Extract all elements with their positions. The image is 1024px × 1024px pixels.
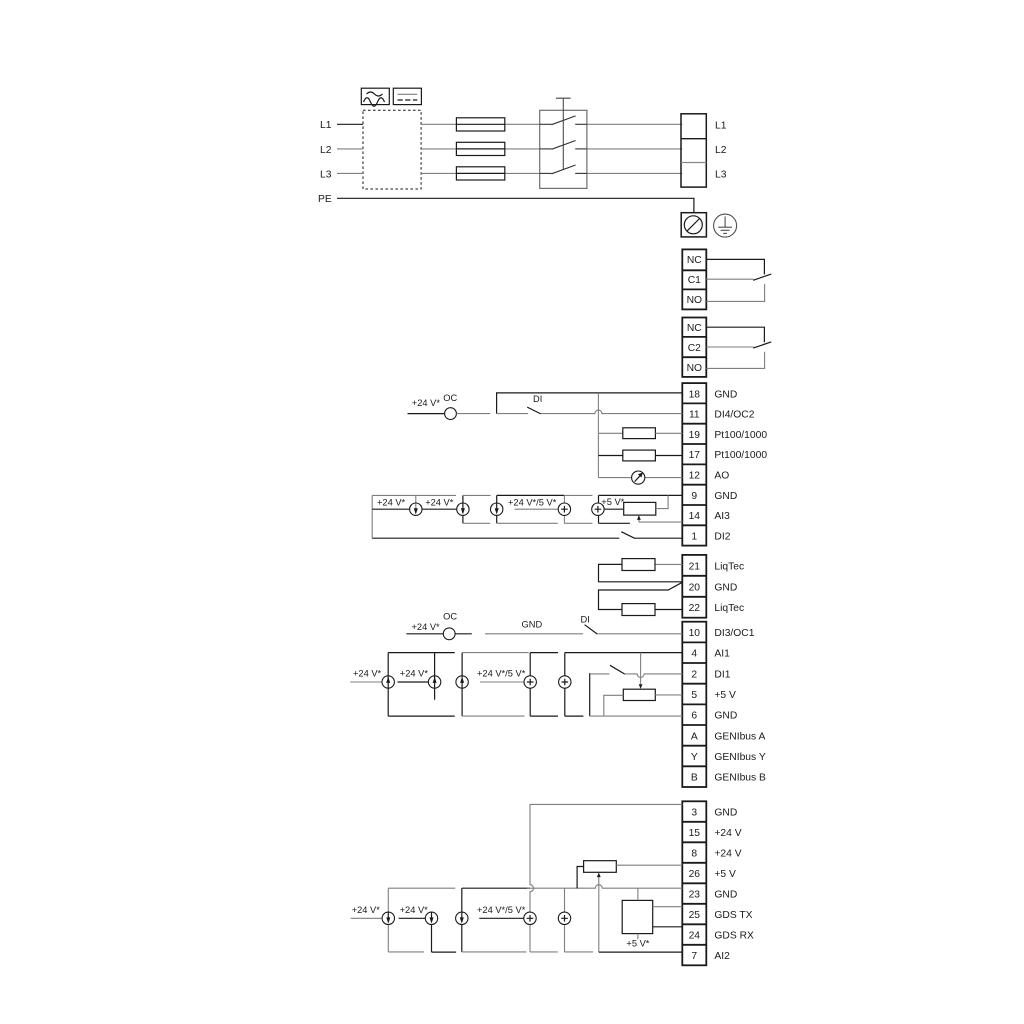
svg-text:GENIbus Y: GENIbus Y [714, 752, 765, 763]
svg-text:GDS RX: GDS RX [714, 931, 754, 942]
svg-text:23: 23 [689, 890, 701, 901]
svg-text:AO: AO [714, 471, 729, 482]
svg-text:OC: OC [443, 393, 457, 403]
svg-text:22: 22 [689, 603, 701, 614]
svg-text:+24 V*: +24 V* [412, 622, 441, 632]
svg-text:1: 1 [691, 531, 697, 542]
svg-text:L3: L3 [715, 170, 727, 181]
svg-text:3: 3 [691, 808, 697, 819]
svg-text:25: 25 [689, 910, 701, 921]
svg-text:17: 17 [689, 450, 701, 461]
svg-text:7: 7 [691, 951, 697, 962]
svg-text:19: 19 [689, 430, 701, 441]
svg-text:GND: GND [714, 582, 737, 593]
svg-text:GENIbus A: GENIbus A [714, 731, 765, 742]
svg-text:DI4/OC2: DI4/OC2 [714, 410, 754, 421]
svg-text:6: 6 [691, 711, 697, 722]
svg-text:DI1: DI1 [714, 669, 730, 680]
svg-text:10: 10 [689, 628, 701, 639]
svg-text:DI3/OC1: DI3/OC1 [714, 628, 754, 639]
svg-text:DI: DI [533, 394, 542, 404]
svg-text:NC: NC [687, 255, 702, 266]
svg-text:21: 21 [689, 561, 701, 572]
svg-text:Pt100/1000: Pt100/1000 [714, 450, 767, 461]
svg-text:4: 4 [691, 649, 697, 660]
svg-text:DI2: DI2 [714, 531, 730, 542]
svg-text:+24 V*/5 V*: +24 V*/5 V* [477, 905, 526, 915]
svg-text:DI: DI [581, 615, 590, 625]
svg-text:14: 14 [689, 511, 701, 522]
svg-text:AI3: AI3 [714, 511, 730, 522]
svg-text:12: 12 [689, 471, 701, 482]
svg-text:+24 V*/5 V*: +24 V*/5 V* [508, 498, 557, 508]
svg-text:L2: L2 [320, 145, 332, 156]
svg-text:AI2: AI2 [714, 951, 730, 962]
svg-text:GND: GND [714, 808, 737, 819]
svg-text:GND: GND [714, 890, 737, 901]
svg-text:9: 9 [691, 491, 697, 502]
svg-text:+24 V*: +24 V* [400, 905, 429, 915]
svg-text:+24 V: +24 V [714, 828, 741, 839]
svg-text:LiqTec: LiqTec [714, 561, 744, 572]
svg-text:L3: L3 [320, 170, 332, 181]
svg-text:15: 15 [689, 828, 701, 839]
svg-text:GND: GND [714, 711, 737, 722]
svg-text:5: 5 [691, 690, 697, 701]
svg-text:Y: Y [691, 752, 698, 763]
svg-text:GND: GND [714, 491, 737, 502]
svg-text:+24 V*: +24 V* [425, 498, 454, 508]
svg-text:AI1: AI1 [714, 649, 730, 660]
svg-text:OC: OC [443, 612, 457, 622]
svg-text:NO: NO [687, 363, 702, 374]
svg-text:+24 V: +24 V [714, 849, 741, 860]
svg-text:+5 V*: +5 V* [601, 497, 624, 507]
svg-text:GDS TX: GDS TX [714, 910, 752, 921]
svg-text:LiqTec: LiqTec [714, 603, 744, 614]
svg-text:+24 V*: +24 V* [352, 905, 381, 915]
svg-text:C2: C2 [688, 343, 701, 354]
svg-text:C1: C1 [688, 275, 701, 286]
svg-text:+24 V*: +24 V* [353, 669, 382, 679]
svg-text:+24 V*: +24 V* [412, 398, 441, 408]
svg-text:+24 V*: +24 V* [400, 669, 429, 679]
svg-text:GND: GND [714, 389, 737, 400]
svg-text:26: 26 [689, 869, 701, 880]
svg-text:20: 20 [689, 582, 701, 593]
svg-text:+5 V: +5 V [714, 690, 736, 701]
svg-text:+5 V: +5 V [714, 869, 736, 880]
svg-text:+24 V*/5 V*: +24 V*/5 V* [477, 669, 526, 679]
svg-text:B: B [691, 773, 698, 784]
svg-text:L2: L2 [715, 145, 727, 156]
svg-text:2: 2 [691, 669, 697, 680]
svg-text:A: A [691, 731, 698, 742]
svg-text:18: 18 [689, 389, 701, 400]
svg-text:Pt100/1000: Pt100/1000 [714, 430, 767, 441]
svg-text:GENIbus B: GENIbus B [714, 773, 766, 784]
svg-text:NC: NC [687, 323, 702, 334]
svg-text:L1: L1 [320, 120, 332, 131]
svg-text:8: 8 [691, 849, 697, 860]
svg-text:24: 24 [689, 931, 701, 942]
svg-text:PE: PE [318, 194, 332, 205]
svg-text:+24 V*: +24 V* [377, 498, 406, 508]
svg-text:+5 V*: +5 V* [626, 939, 649, 949]
svg-text:GND: GND [522, 619, 543, 629]
svg-text:11: 11 [689, 410, 700, 421]
svg-text:L1: L1 [715, 121, 727, 132]
svg-text:NO: NO [687, 295, 702, 306]
